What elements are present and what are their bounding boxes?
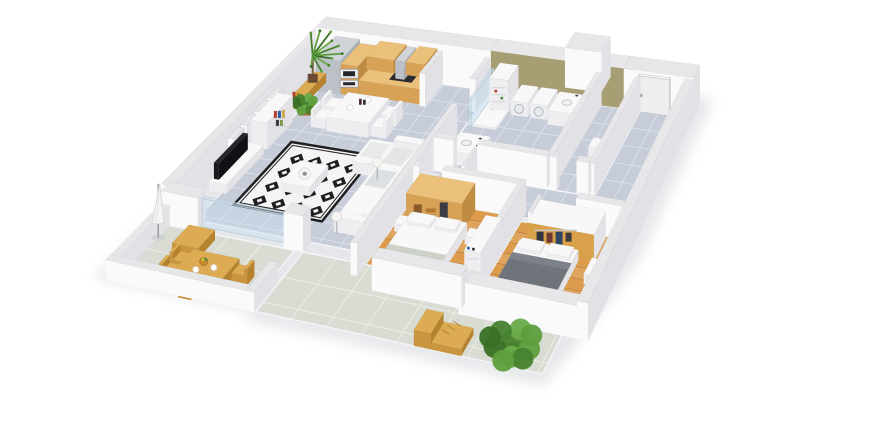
wardrobe-2-clothes-4 [535, 230, 577, 232]
bookshelf-books-6 [280, 120, 283, 126]
wardrobe-2-clothes-3 [566, 233, 572, 242]
small-plant-living-leaves [297, 106, 306, 115]
dining-table-setting-1 [365, 97, 371, 103]
dining-chair-left-2-back-front [311, 110, 314, 128]
terrace-plant-leaves [479, 326, 501, 348]
wall-living-bed1-b-front [351, 242, 358, 276]
bathroom-shelf-items-0 [492, 101, 506, 102]
wall-bathroom-front-b-right [547, 151, 550, 189]
dresser-1-items-2 [466, 258, 478, 259]
wall-wc-front-b-front [577, 161, 589, 196]
terrace-chair-3-back-front [244, 269, 247, 286]
wardrobe-2-clothes-2 [556, 232, 563, 245]
floor-lamp-2-1 [332, 211, 342, 221]
palm-plant-frond-tip [330, 39, 333, 42]
entrance-door-front [638, 76, 669, 116]
bathroom-shelf-items-1 [492, 94, 506, 95]
wall-wc-front-a-right [557, 152, 560, 190]
vanity-1-sink [562, 100, 572, 106]
bookshelf-books-3 [278, 111, 281, 118]
floor-plan-canvas [0, 0, 870, 435]
wall-wc-front-b-right [588, 158, 591, 196]
bookshelf-books-1 [272, 118, 288, 119]
vanity-1-faucet [575, 95, 578, 97]
terrace-table-setting-1 [201, 258, 204, 261]
palm-plant-frond-tip [319, 29, 322, 32]
palm-plant-frond-tip [331, 57, 334, 60]
kitchen-end-wall-front [420, 73, 426, 107]
tv-screen-front [214, 163, 219, 180]
wall-wc-front-a-front [553, 157, 557, 191]
wardrobe-1-shelves-1 [426, 208, 436, 212]
bathroom-shelf-items-4 [500, 97, 503, 100]
terrace-table-setting-3 [211, 265, 217, 271]
dining-table-setting-0 [347, 105, 353, 111]
terrace-plant-leaves [520, 324, 542, 346]
terrace-table-setting-2 [204, 258, 207, 261]
bathroom-shelf-items-3 [494, 90, 497, 93]
bookshelf-books-5 [276, 120, 279, 126]
palm-plant-pot [308, 74, 318, 83]
terrace-table-setting-4 [193, 267, 199, 273]
palm-plant-frond-tip [310, 65, 313, 68]
kitchen-hood-front [395, 61, 404, 80]
floor-lamp-1-1 [372, 157, 382, 167]
bookshelf-books-0 [272, 126, 288, 127]
bookshelf-books-4 [282, 110, 285, 118]
dresser-1-items-0 [467, 247, 470, 250]
palm-plant-frond-tip [327, 64, 330, 67]
palm-plant-frond-tip [320, 70, 323, 73]
terrace-1-parapet-right-front [246, 291, 254, 313]
palm-plant-frond-tip [329, 30, 332, 33]
terrace-plant-leaves [492, 350, 514, 372]
wall-living-front-corner-front [284, 212, 303, 252]
dining-chair-right-2-back-front [383, 121, 386, 139]
palm-plant-frond-tip [337, 45, 340, 48]
bookshelf-books-2 [274, 111, 277, 118]
vanity-2-sink [462, 140, 472, 146]
palm-plant-frond-tip [341, 52, 344, 55]
wall-right-exterior-front [577, 301, 588, 341]
wardrobe-2-clothes-1 [547, 233, 553, 243]
dryer-door-0 [534, 107, 543, 116]
dining-table-setting-2 [359, 99, 362, 105]
shower-glass-front [469, 100, 471, 126]
washing-machine-door-0 [515, 104, 524, 113]
terrace-plant-leaves [512, 348, 534, 370]
floor-plan-svg [0, 0, 870, 435]
dresser-1-items-1 [472, 248, 475, 251]
kitchen-oven-fronts-1 [343, 71, 355, 76]
kitchen-oven-fronts-3 [343, 82, 355, 85]
floor-plan-page [0, 0, 870, 435]
coffee-table-tray-1 [303, 172, 307, 176]
palm-plant-frond-tip [309, 31, 312, 34]
bathroom-shelf-items-2 [492, 87, 506, 88]
dining-table-setting-3 [363, 100, 366, 105]
